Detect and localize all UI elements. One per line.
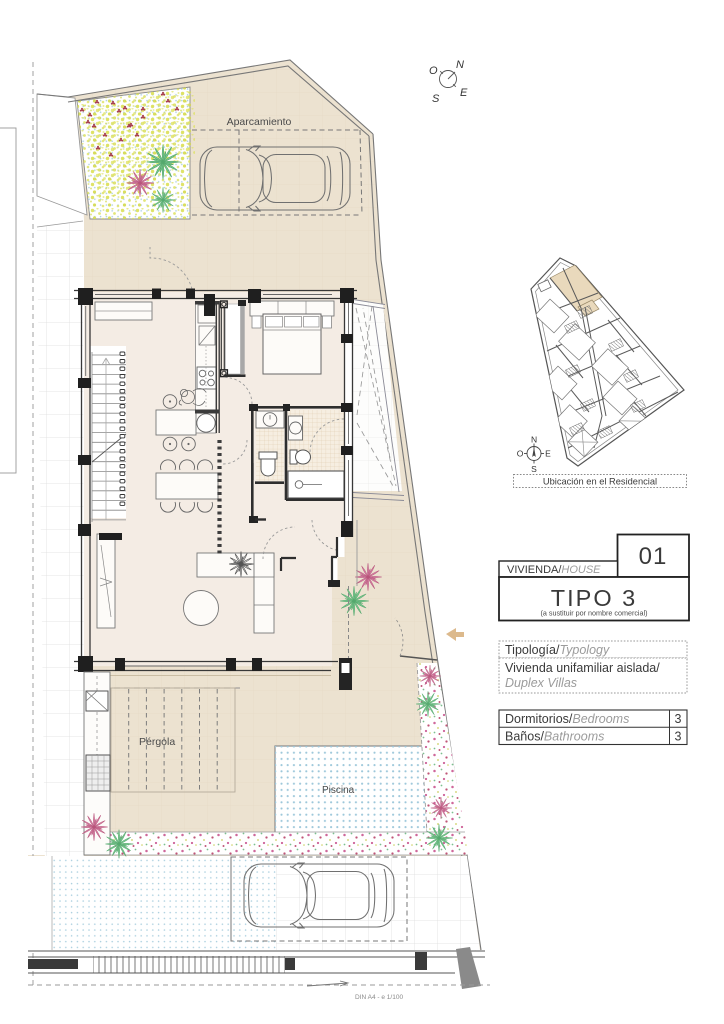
- svg-text:N: N: [456, 59, 464, 71]
- svg-text:E: E: [545, 449, 551, 459]
- svg-text:Baños/Bathrooms: Baños/Bathrooms: [505, 730, 604, 744]
- svg-text:Aparcamiento: Aparcamiento: [227, 116, 292, 128]
- svg-text:O: O: [517, 449, 524, 459]
- svg-text:Tipología/Typology: Tipología/Typology: [505, 643, 610, 657]
- svg-text:Piscina: Piscina: [322, 785, 355, 796]
- svg-text:Dormitorios/Bedrooms: Dormitorios/Bedrooms: [505, 712, 629, 726]
- svg-text:E: E: [460, 87, 468, 99]
- svg-text:VIVIENDA/HOUSE: VIVIENDA/HOUSE: [507, 564, 601, 576]
- svg-text:(a sustituir por nombre comerc: (a sustituir por nombre comercial): [540, 609, 647, 618]
- svg-text:S: S: [531, 464, 537, 474]
- svg-text:S: S: [432, 93, 440, 105]
- svg-text:Duplex Villas: Duplex Villas: [505, 676, 577, 690]
- svg-text:Pérgola: Pérgola: [139, 736, 175, 748]
- svg-text:Ubicación en el Residencial: Ubicación en el Residencial: [543, 477, 657, 487]
- svg-text:DIN A4 - e 1/100: DIN A4 - e 1/100: [355, 994, 403, 1001]
- svg-text:3: 3: [675, 712, 682, 726]
- svg-text:Vivienda unifamiliar aislada/: Vivienda unifamiliar aislada/: [505, 661, 660, 675]
- svg-text:N: N: [531, 435, 537, 445]
- svg-text:3: 3: [675, 730, 682, 744]
- svg-text:01: 01: [639, 543, 668, 570]
- svg-text:TIPO 3: TIPO 3: [551, 585, 637, 611]
- svg-text:O: O: [429, 65, 438, 77]
